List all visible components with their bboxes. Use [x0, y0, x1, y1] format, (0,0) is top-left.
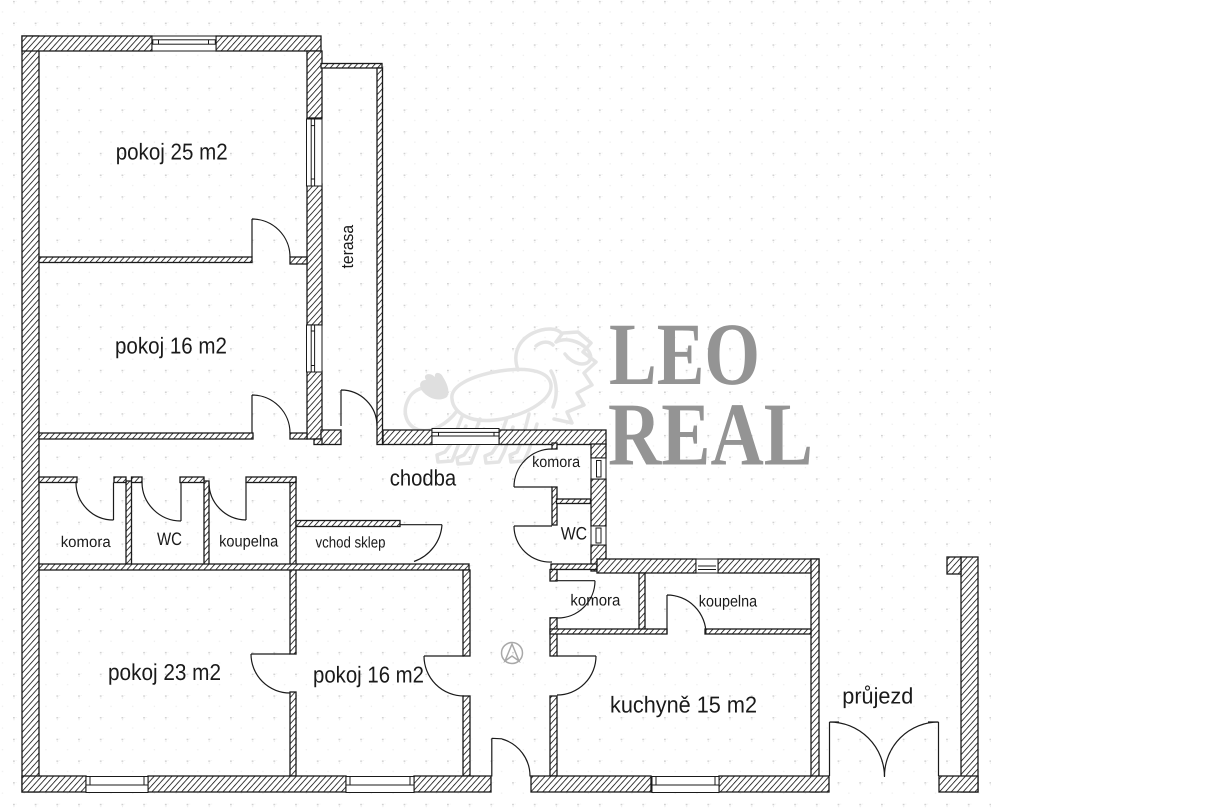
svg-text:komora: komora: [532, 454, 580, 471]
svg-text:koupelna: koupelna: [219, 534, 278, 551]
svg-text:komora: komora: [570, 593, 620, 610]
svg-text:kuchyně 15 m2: kuchyně 15 m2: [610, 692, 757, 718]
svg-text:WC: WC: [561, 524, 587, 544]
svg-text:pokoj 23 m2: pokoj 23 m2: [108, 659, 221, 685]
svg-text:REAL: REAL: [608, 386, 813, 485]
svg-text:WC: WC: [157, 529, 182, 549]
svg-text:vchod sklep: vchod sklep: [316, 535, 386, 552]
svg-text:pokoj 25 m2: pokoj 25 m2: [116, 139, 228, 165]
svg-text:pokoj 16 m2: pokoj 16 m2: [313, 662, 424, 688]
svg-text:koupelna: koupelna: [699, 594, 757, 611]
svg-text:terasa: terasa: [338, 224, 357, 268]
svg-text:chodba: chodba: [390, 466, 457, 491]
svg-text:pokoj 16 m2: pokoj 16 m2: [115, 333, 227, 359]
svg-text:komora: komora: [61, 534, 111, 551]
svg-text:průjezd: průjezd: [842, 684, 913, 709]
